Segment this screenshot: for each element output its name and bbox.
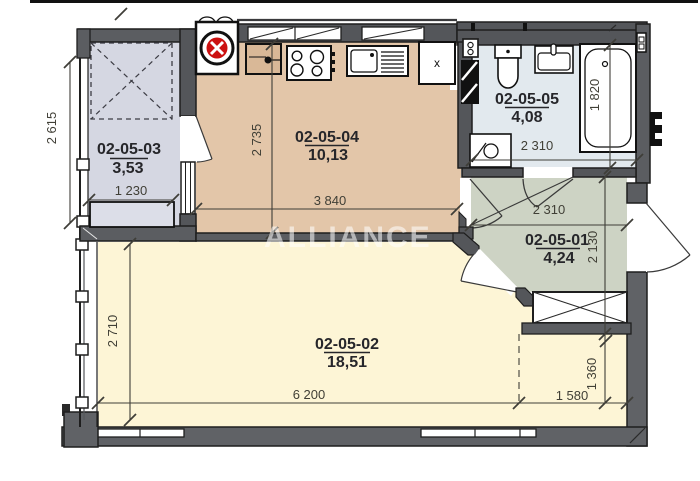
svg-text:10,13: 10,13 <box>308 147 348 164</box>
svg-text:4,24: 4,24 <box>543 250 574 267</box>
svg-text:2 310: 2 310 <box>521 138 554 153</box>
svg-text:1 580: 1 580 <box>556 388 589 403</box>
svg-text:02-05-02: 02-05-02 <box>315 336 379 353</box>
svg-text:02-05-04: 02-05-04 <box>295 129 359 146</box>
svg-text:1 230: 1 230 <box>115 183 148 198</box>
svg-text:3 840: 3 840 <box>314 193 347 208</box>
svg-text:2 310: 2 310 <box>533 202 566 217</box>
svg-text:6 200: 6 200 <box>293 387 326 402</box>
svg-text:02-05-03: 02-05-03 <box>97 141 161 158</box>
svg-text:2 615: 2 615 <box>44 112 59 145</box>
svg-text:1 360: 1 360 <box>584 358 599 391</box>
svg-text:02-05-01: 02-05-01 <box>525 232 589 249</box>
svg-text:18,51: 18,51 <box>327 354 367 371</box>
svg-text:2 710: 2 710 <box>105 315 120 348</box>
svg-text:2 735: 2 735 <box>249 124 264 157</box>
svg-text:02-05-05: 02-05-05 <box>495 91 559 108</box>
svg-text:ALLIANCE: ALLIANCE <box>264 221 432 254</box>
svg-text:1 820: 1 820 <box>587 79 602 112</box>
svg-text:4,08: 4,08 <box>511 109 542 126</box>
svg-text:x: x <box>434 56 440 70</box>
svg-text:3,53: 3,53 <box>112 160 143 177</box>
